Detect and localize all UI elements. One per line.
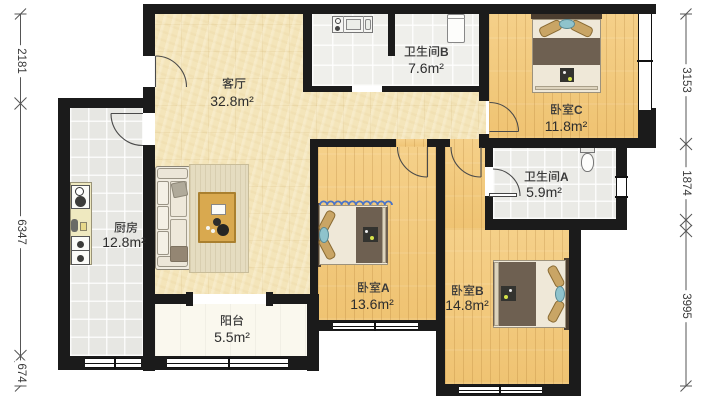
svg-text:A: A <box>381 281 389 295</box>
svg-text:C: C <box>574 103 582 117</box>
svg-text:B: B <box>440 45 448 59</box>
svg-text:A: A <box>560 170 568 184</box>
svg-text:B: B <box>475 284 483 298</box>
